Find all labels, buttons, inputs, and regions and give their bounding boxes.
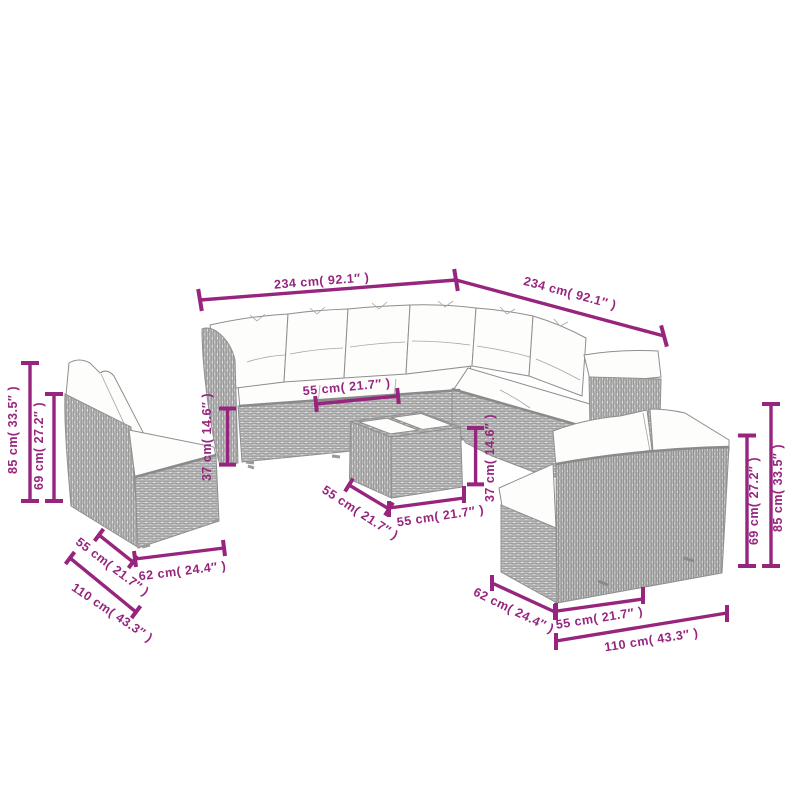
svg-text:85 cm( 33.5″ ): 85 cm( 33.5″ ) — [6, 386, 20, 474]
svg-text:85 cm( 33.5″ ): 85 cm( 33.5″ ) — [771, 444, 785, 532]
svg-text:69 cm( 27.2″ ): 69 cm( 27.2″ ) — [747, 457, 761, 545]
svg-text:37 cm( 14.6″ ): 37 cm( 14.6″ ) — [200, 393, 214, 481]
svg-text:69 cm( 27.2″ ): 69 cm( 27.2″ ) — [32, 402, 46, 490]
svg-text:62 cm( 24.4″ ): 62 cm( 24.4″ ) — [138, 559, 227, 584]
svg-text:234 cm( 92.1″ ): 234 cm( 92.1″ ) — [522, 274, 618, 312]
svg-text:37 cm( 14.6″ ): 37 cm( 14.6″ ) — [483, 414, 497, 502]
